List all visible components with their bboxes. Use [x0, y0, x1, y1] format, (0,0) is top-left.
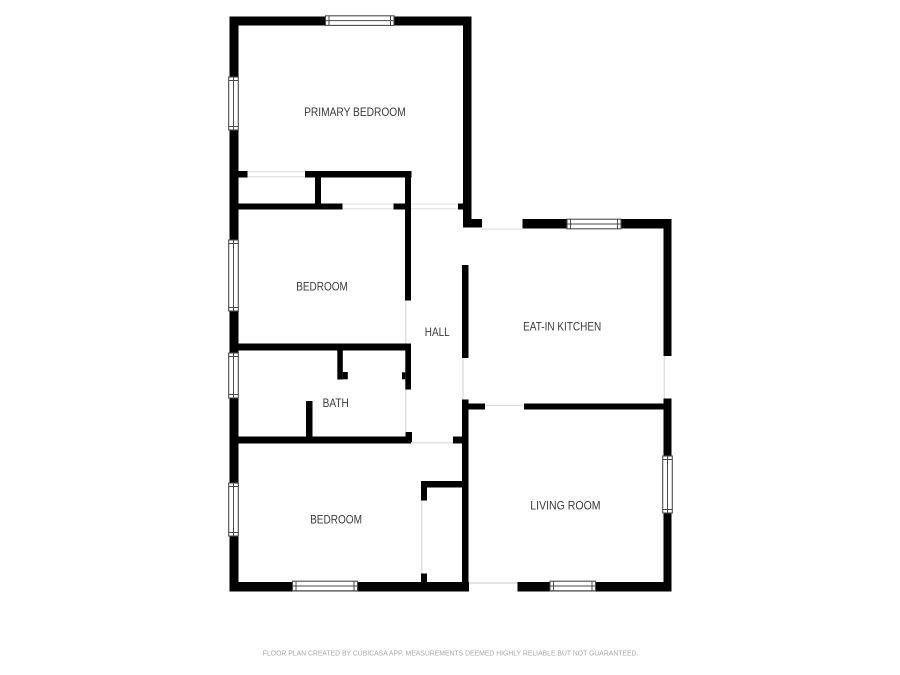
svg-text:LIVING ROOM: LIVING ROOM	[530, 498, 600, 512]
svg-text:EAT-IN KITCHEN: EAT-IN KITCHEN	[523, 319, 601, 333]
svg-text:BEDROOM: BEDROOM	[310, 512, 362, 526]
svg-text:HALL: HALL	[425, 325, 450, 339]
svg-text:PRIMARY BEDROOM: PRIMARY BEDROOM	[304, 105, 406, 119]
svg-text:BEDROOM: BEDROOM	[296, 280, 348, 294]
svg-text:FLOOR PLAN CREATED BY CUBICASA: FLOOR PLAN CREATED BY CUBICASA APP. MEAS…	[263, 649, 639, 658]
svg-text:BATH: BATH	[323, 396, 349, 410]
